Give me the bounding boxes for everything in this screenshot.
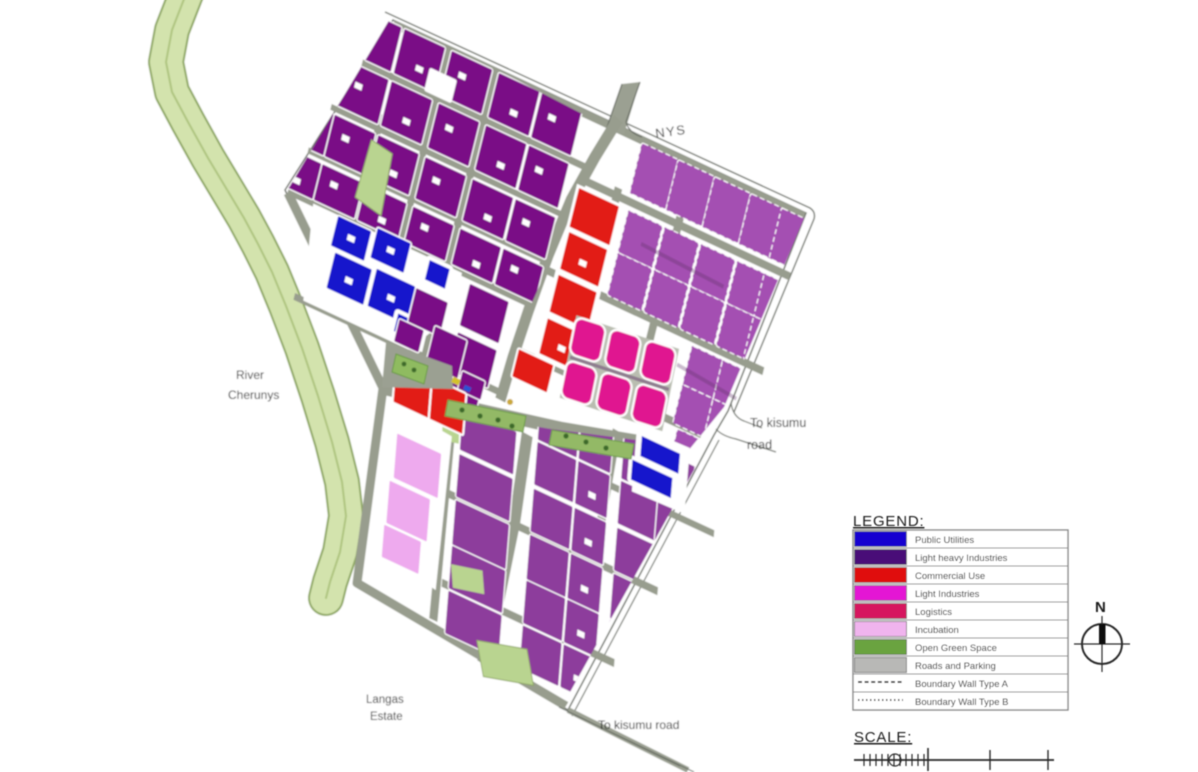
- svg-text:LEGEND:: LEGEND:: [853, 513, 924, 530]
- svg-text:Boundary Wall Type A: Boundary Wall Type A: [915, 679, 1009, 690]
- svg-text:Public Utilities: Public Utilities: [915, 535, 974, 546]
- svg-text:Light heavy Industries: Light heavy Industries: [915, 553, 1008, 564]
- svg-text:Open Green Space: Open Green Space: [915, 643, 997, 654]
- svg-text:Incubation: Incubation: [915, 625, 959, 636]
- svg-text:River: River: [236, 368, 264, 382]
- svg-text:Boundary Wall Type B: Boundary Wall Type B: [915, 697, 1008, 708]
- svg-text:Roads and Parking: Roads and Parking: [915, 661, 996, 672]
- svg-text:Langas: Langas: [366, 694, 404, 706]
- svg-text:Estate: Estate: [370, 711, 403, 723]
- svg-text:Commercial Use: Commercial Use: [915, 571, 985, 582]
- svg-text:To kisumu: To kisumu: [750, 416, 806, 430]
- svg-text:Cherunys: Cherunys: [228, 388, 279, 402]
- svg-text:Logistics: Logistics: [915, 607, 952, 618]
- svg-text:To kisumu road: To kisumu road: [598, 718, 679, 732]
- svg-text:N: N: [1095, 599, 1106, 616]
- svg-text:Light Industries: Light Industries: [915, 589, 980, 600]
- svg-text:road: road: [747, 438, 772, 452]
- svg-text:SCALE:: SCALE:: [854, 729, 912, 746]
